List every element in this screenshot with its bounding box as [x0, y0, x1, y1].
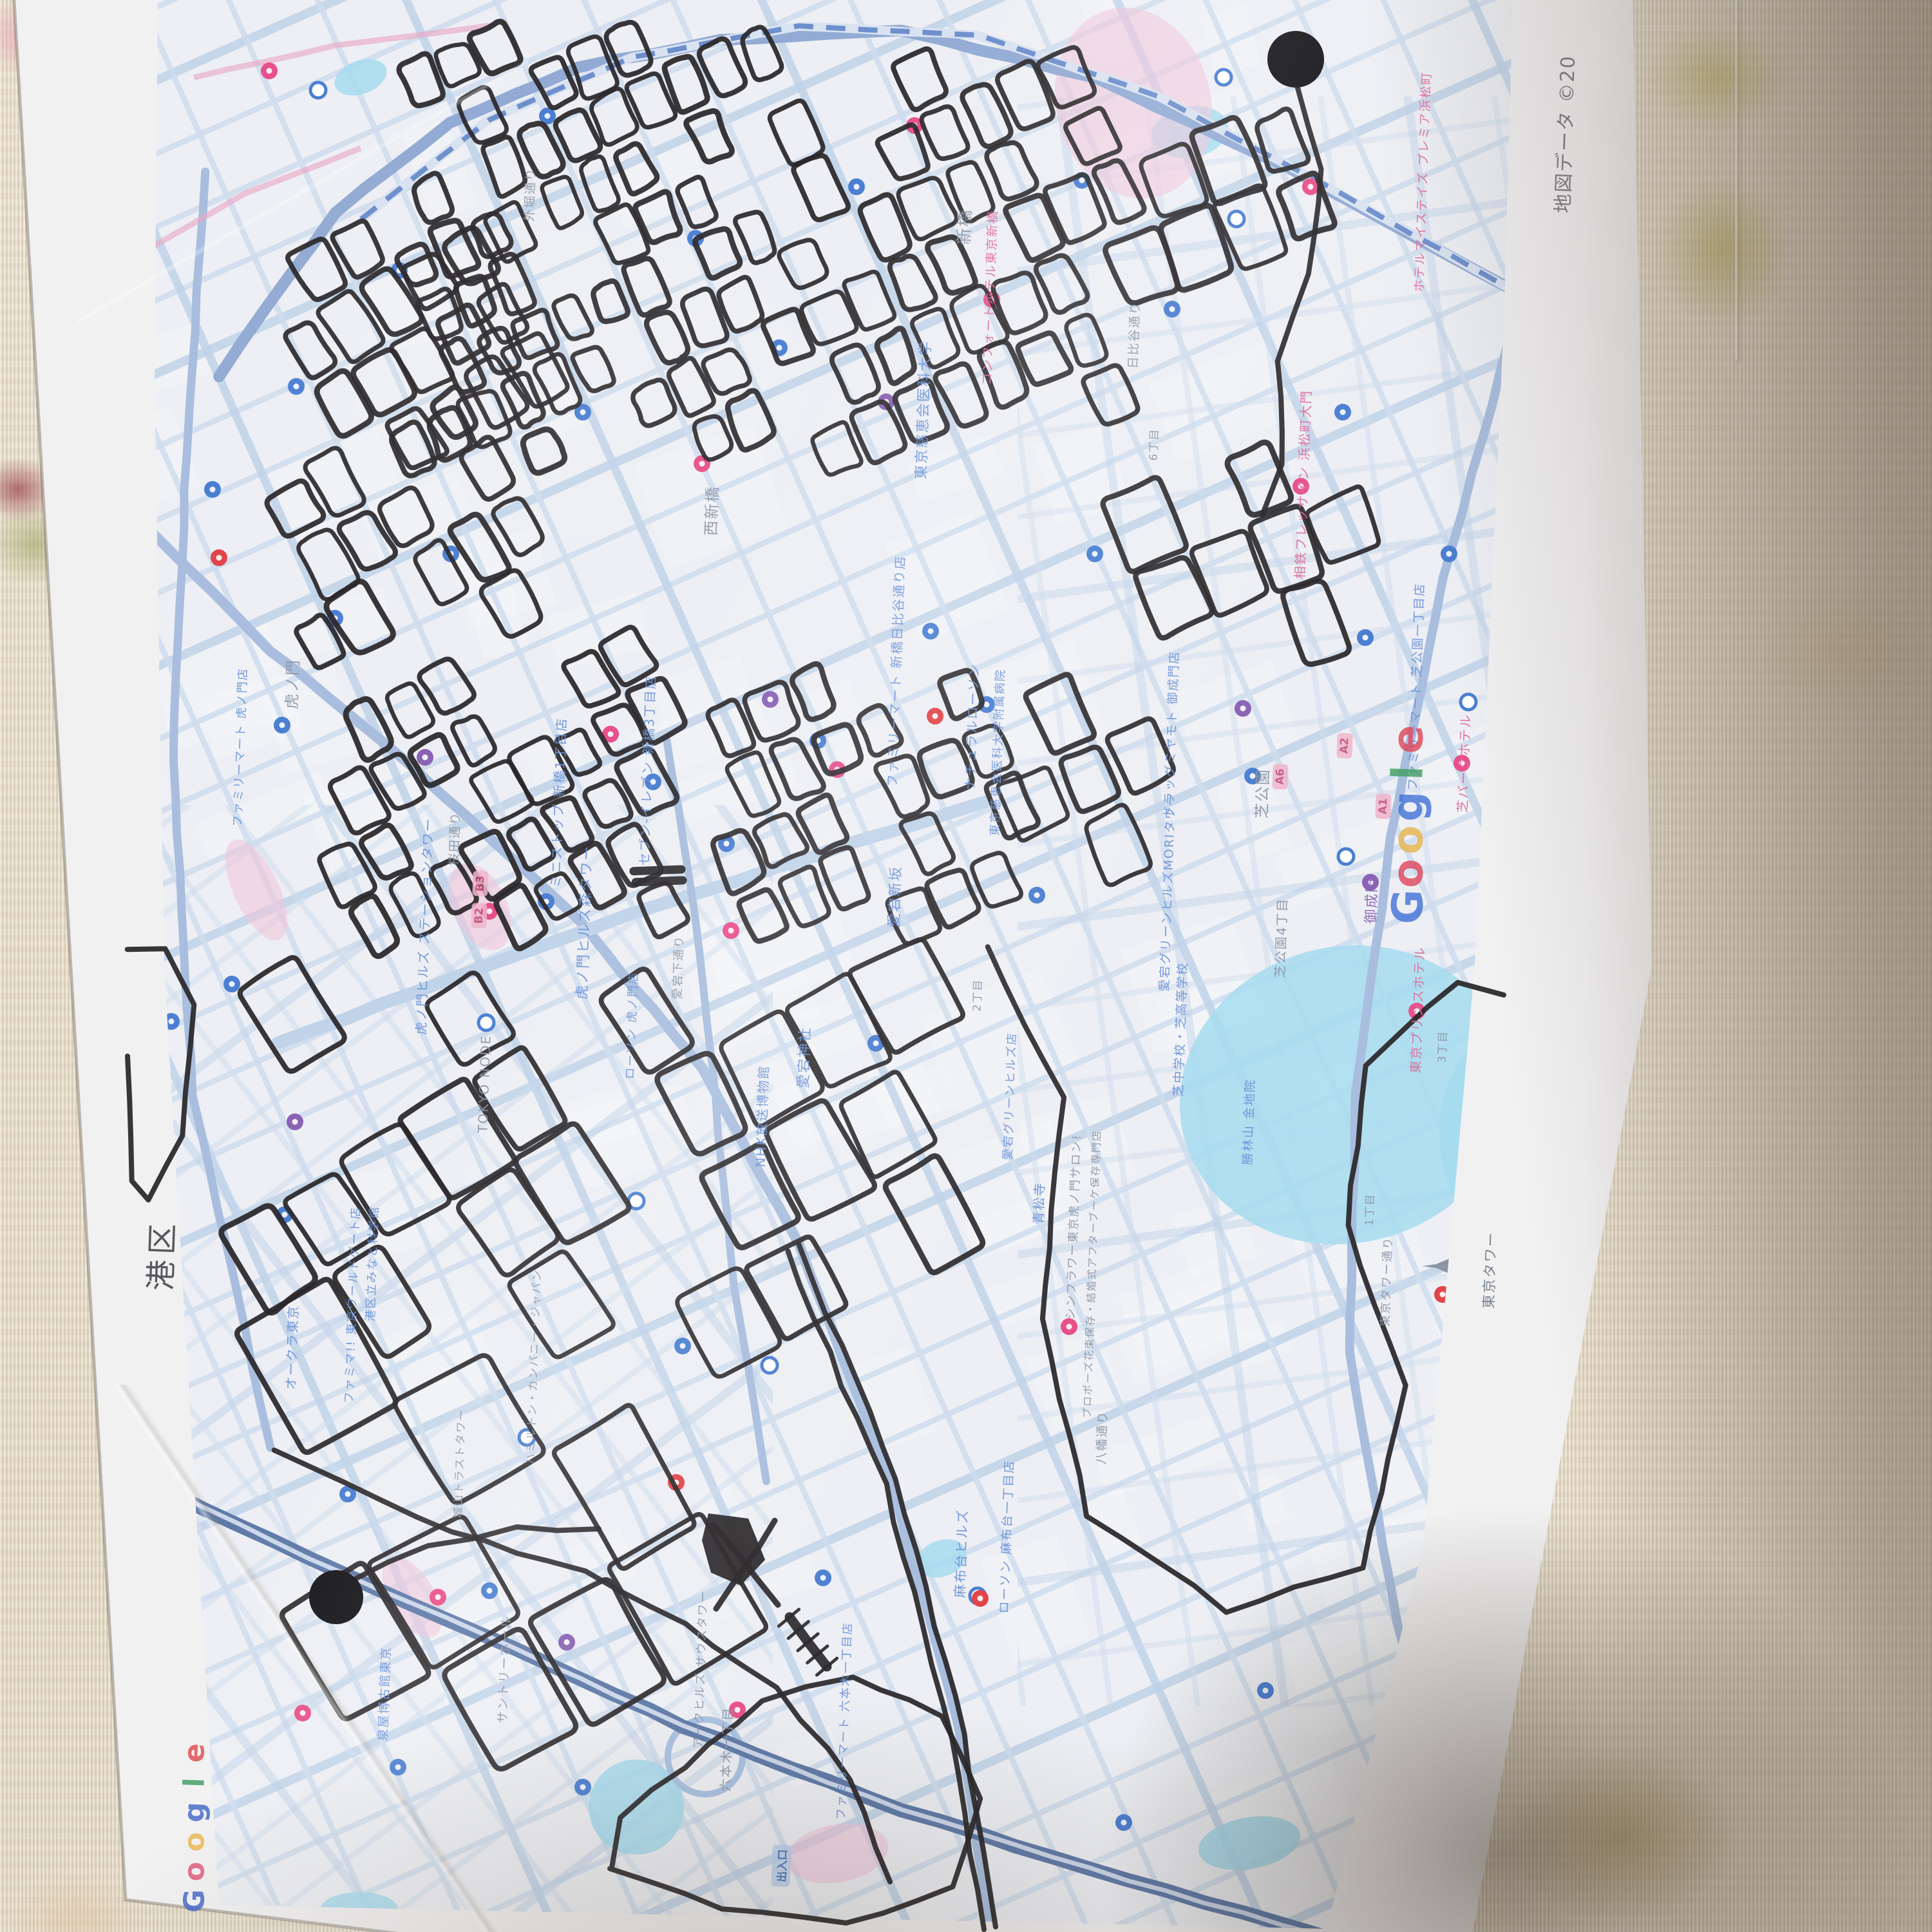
- poi-dot: [1338, 849, 1354, 864]
- photo-of-map: 港区 地図データ ©20 新橋西新橋虎ノ門外堀通り日比谷通り桜田通り愛宕下通り八…: [0, 0, 1932, 1932]
- hand-drawn-bold-mark: [634, 869, 681, 871]
- hand-drawn-bold-mark: [636, 880, 683, 882]
- poi-dot: [310, 82, 326, 98]
- poi-dot: [478, 1015, 494, 1030]
- map-scene: [0, 0, 1932, 1932]
- poi-dot: [1461, 694, 1476, 710]
- poi-dot: [1216, 70, 1231, 85]
- poi-dot: [762, 1358, 777, 1373]
- poi-dot: [1229, 211, 1244, 227]
